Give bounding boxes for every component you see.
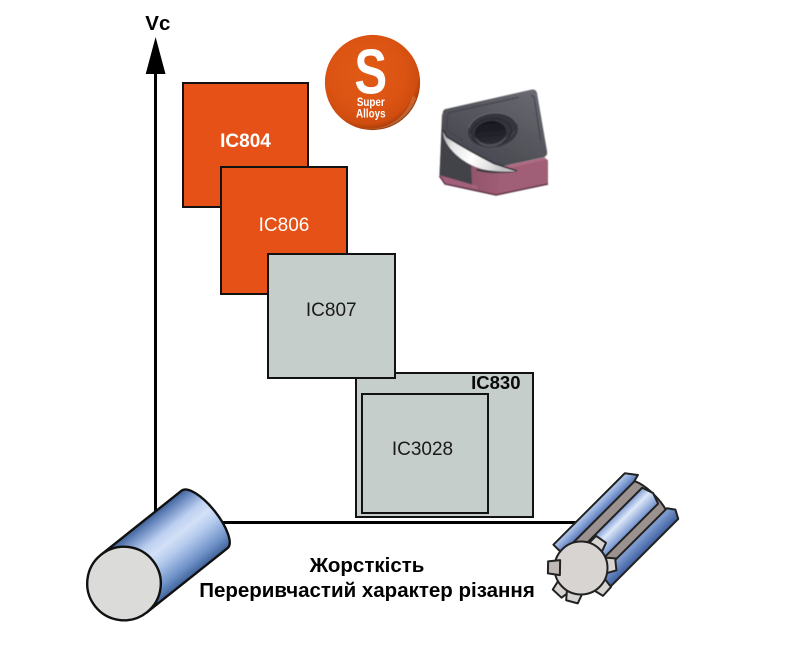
svg-text:Alloys: Alloys [356, 108, 385, 121]
